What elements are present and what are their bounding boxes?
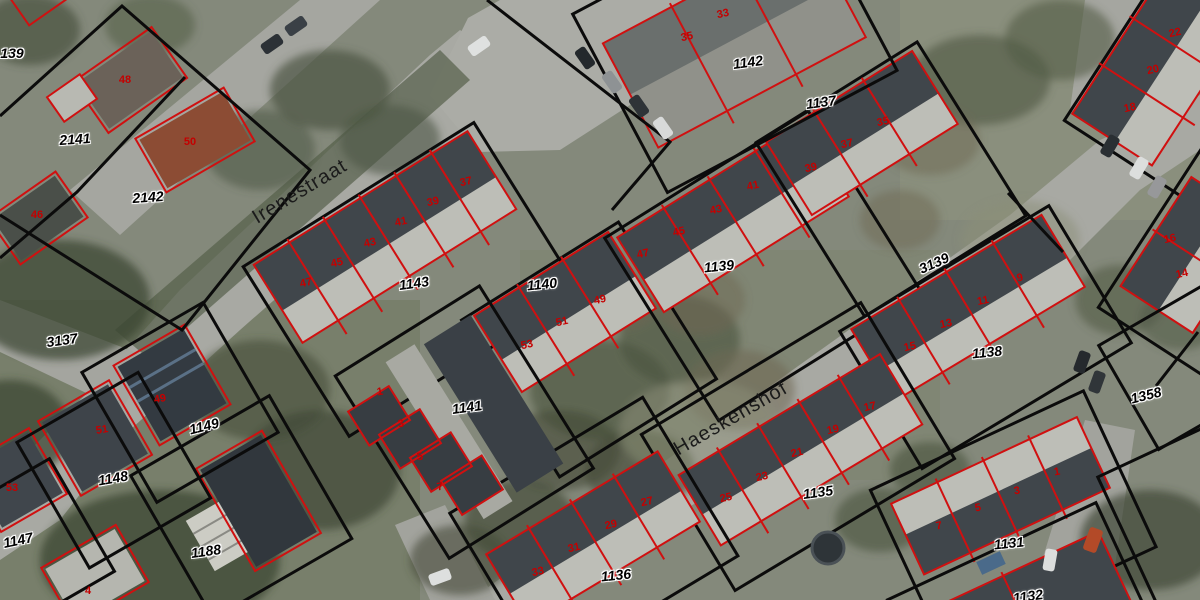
aerial-imagery xyxy=(0,0,1200,600)
trampoline xyxy=(812,532,844,564)
map-canvas[interactable]: IrenestraatHaeskenshof 13921412142313711… xyxy=(0,0,1200,600)
